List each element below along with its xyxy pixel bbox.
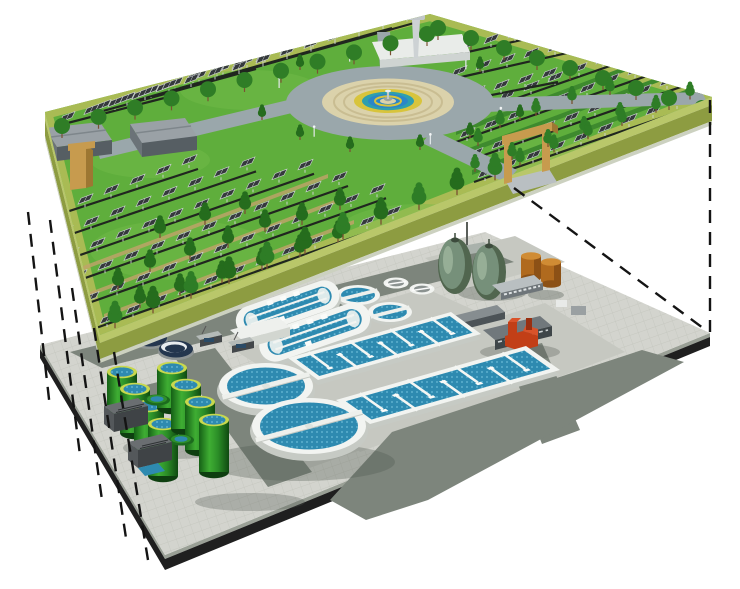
tree-canopy-top (570, 86, 575, 91)
panel-grid-line (682, 49, 685, 55)
tank-water-texture (161, 363, 184, 372)
tree-canopy-top (302, 227, 309, 234)
tree-canopy-top (510, 142, 515, 147)
tank-water-texture (189, 397, 212, 406)
tree-canopy-top (534, 98, 539, 103)
tower-head (407, 13, 425, 20)
tree-canopy-top (552, 134, 557, 139)
tower-head-top (407, 10, 425, 16)
tank-body (199, 420, 229, 472)
panel-grid-line (586, 12, 589, 18)
solar-panel (548, 42, 563, 53)
tree-canopy-top (454, 168, 461, 175)
solar-panel (376, 14, 391, 25)
solar-panel (684, 67, 699, 78)
west-gate-pillar-side (86, 146, 93, 188)
container-gray (571, 306, 586, 315)
fuel-tank-top (521, 252, 541, 260)
solar-panel (628, 65, 643, 76)
tree-canopy-top (340, 212, 347, 219)
panel-grid-line (382, 18, 385, 24)
tree-canopy-top (348, 136, 352, 140)
tree-canopy-top (298, 54, 302, 58)
clarifier-hub (305, 424, 313, 429)
panel-grid-line (64, 228, 67, 234)
medium-clarifier (368, 302, 412, 325)
pump-tower (508, 322, 517, 340)
solar-panel (596, 30, 611, 41)
solar-panel (620, 24, 635, 35)
panel-grid-line (554, 44, 557, 50)
tree-canopy-top (157, 215, 163, 221)
tree-canopy-top (188, 271, 195, 278)
tree-canopy-top (618, 102, 623, 107)
green-tank (199, 414, 229, 478)
panel-grid-line (650, 38, 653, 44)
tree-canopy-top (492, 153, 499, 160)
tree-canopy-top (586, 121, 591, 126)
panel-grid-line (706, 40, 709, 46)
panel-grid-line (690, 69, 693, 75)
egg-cap (485, 244, 493, 249)
panel-grid-line (602, 56, 605, 62)
panel-grid-line (288, 44, 291, 50)
panel-grid-line (334, 31, 337, 37)
round-tree-canopy (562, 60, 578, 76)
tree-canopy-top (147, 249, 153, 255)
panel-grid-line (310, 38, 313, 44)
solar-panel (508, 28, 523, 39)
tree-canopy-top (112, 301, 119, 308)
tree-canopy-top (498, 110, 503, 115)
plaza-light-lamp (429, 133, 432, 136)
round-tree-canopy (628, 80, 644, 96)
low-green-tank (144, 395, 170, 406)
tree-canopy-top (242, 191, 248, 197)
fuel-tank-base (541, 280, 561, 288)
solar-panel (580, 10, 595, 21)
round-tree-canopy (200, 81, 216, 97)
tree-canopy-top (226, 256, 233, 263)
panel-grid-line (578, 38, 581, 44)
solar-panel (620, 45, 635, 56)
solar-panel (400, 8, 415, 19)
tank-water-texture (203, 415, 226, 424)
solar-panel (652, 56, 667, 67)
tree-canopy-top (518, 148, 523, 153)
panel-grid-line (312, 36, 315, 42)
panel-grid-line (562, 18, 565, 24)
skid-screen (204, 338, 214, 342)
round-tree-canopy (127, 100, 143, 116)
tree-canopy-top (478, 56, 482, 60)
tree-canopy-top (187, 237, 193, 243)
fuel-tank-top (541, 258, 561, 266)
tree-canopy-top (337, 187, 343, 193)
round-tree-canopy (383, 35, 399, 51)
tank-water-texture (175, 380, 198, 389)
round-tree-canopy (54, 118, 70, 134)
panel-grid-line (610, 6, 613, 12)
round-tree-canopy (529, 50, 545, 66)
tree-canopy-top (608, 77, 613, 82)
low-tank-water (151, 396, 164, 402)
round-tree-canopy (463, 30, 479, 46)
panel-grid-line (514, 30, 517, 36)
solar-panel (596, 54, 611, 65)
panel-grid-line (626, 26, 629, 32)
tree-canopy-top (416, 182, 423, 189)
tank-water-texture (111, 367, 134, 376)
round-tree-canopy (496, 40, 512, 56)
solar-panel (676, 47, 691, 58)
tree-canopy-top (177, 273, 183, 279)
covered-tank-hatch (165, 345, 185, 353)
solar-panel (556, 16, 571, 27)
panel-grid-line (358, 23, 361, 29)
tree-canopy-top (378, 197, 385, 204)
tree-canopy-top (582, 116, 587, 121)
panel-grid-line (666, 78, 669, 84)
panel-grid-line (658, 58, 661, 64)
tree-canopy-top (264, 241, 271, 248)
round-tree-canopy (430, 20, 446, 36)
solar-panel (604, 4, 619, 15)
panel-grid-line (674, 29, 677, 35)
solar-panel (700, 38, 715, 49)
panel-grid-line (382, 16, 385, 22)
round-tree-canopy (91, 109, 107, 125)
pump-stack (526, 318, 532, 330)
tree-canopy-top (418, 134, 422, 138)
plaza-light-lamp (313, 125, 316, 128)
tree-canopy-top (262, 209, 268, 215)
solar-panel (644, 18, 659, 29)
mini-clarifier (384, 278, 409, 289)
large-clarifier (250, 398, 368, 461)
panel-grid-line (634, 67, 637, 73)
egg-cap (451, 238, 459, 243)
exploded-view-illustration (0, 0, 740, 589)
tree-canopy-top (688, 81, 693, 86)
round-tree-canopy (273, 63, 289, 79)
tree-canopy-top (299, 202, 305, 208)
tree-canopy-top (476, 128, 481, 133)
tree-canopy-top (468, 122, 472, 126)
panel-grid-line (602, 32, 605, 38)
tree-canopy-top (473, 154, 478, 159)
skid-screen (236, 344, 246, 348)
panel-grid-line (626, 47, 629, 53)
round-tree-canopy (237, 72, 253, 88)
left-projection-line (28, 212, 50, 408)
tree-canopy-top (518, 104, 522, 108)
west-gate-pillar (70, 146, 86, 190)
panel-grid-line (714, 60, 717, 66)
illustration-stage (0, 0, 740, 589)
round-tree-canopy (661, 90, 677, 106)
tree-canopy-top (150, 286, 157, 293)
container-white (556, 300, 567, 307)
panel-grid-line (538, 24, 541, 30)
front-shadow-strip (195, 493, 305, 511)
tree-canopy-top (225, 225, 231, 231)
park-building (130, 118, 197, 157)
panel-grid-line (650, 20, 653, 26)
egg-highlight (443, 246, 453, 274)
plaza-light-lamp (500, 107, 503, 110)
tree-canopy-top (654, 95, 659, 100)
fuel-tank (541, 258, 561, 288)
solar-panel (352, 21, 367, 32)
egg-highlight (477, 252, 487, 280)
fountain-spray (385, 90, 391, 93)
tree-canopy-top (298, 124, 302, 128)
solar-panel (376, 16, 391, 27)
solar-panel (572, 36, 587, 47)
tank-water-texture (124, 384, 147, 393)
tree-canopy-top (620, 108, 625, 113)
round-tree-canopy (346, 44, 362, 60)
panel-grid-line (58, 206, 61, 212)
solar-panel (708, 58, 723, 69)
mini-clarifier (410, 284, 435, 295)
west-gate (68, 141, 95, 190)
low-tank-water (175, 436, 188, 442)
clarifier-hub (262, 384, 270, 389)
panel-grid-line (698, 20, 701, 26)
tree-canopy-top (115, 267, 121, 273)
tree-canopy-top (202, 202, 208, 208)
solar-panel (668, 27, 683, 38)
panel-grid-line (358, 25, 361, 31)
tree-canopy-top (137, 285, 143, 291)
tree-canopy-top (546, 129, 551, 134)
panel-grid-line (406, 10, 409, 16)
solar-panel (692, 18, 707, 29)
round-tree-canopy (310, 54, 326, 70)
tree-canopy-top (260, 104, 264, 108)
solar-panel (532, 22, 547, 33)
round-tree-canopy (164, 90, 180, 106)
solar-panel (644, 36, 659, 47)
covered-tank (158, 341, 194, 361)
